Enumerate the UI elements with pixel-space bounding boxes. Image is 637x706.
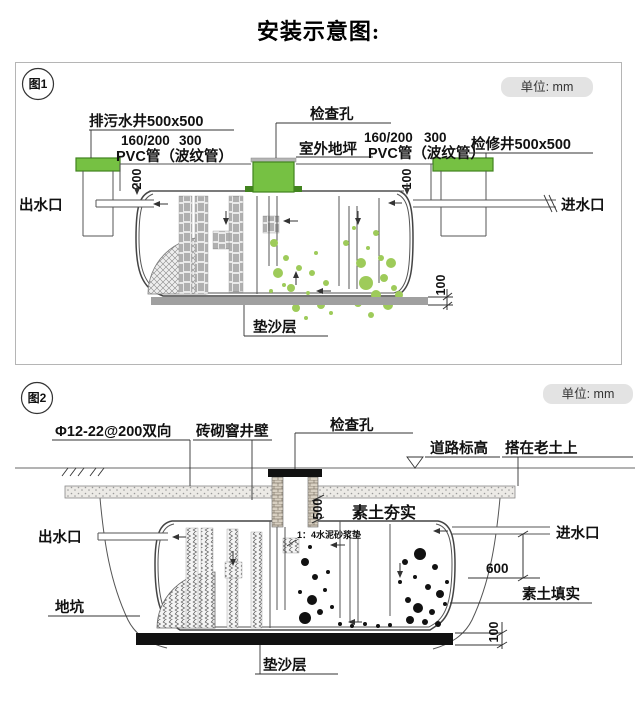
base-slab-fig2 — [136, 633, 453, 645]
dim-100-top-fig1: 100 — [400, 169, 414, 194]
figure2-panel: 图2 单位: mm — [0, 372, 637, 706]
svg-text:100: 100 — [487, 622, 501, 643]
label-inlet-fig1: 进水口 — [561, 196, 605, 214]
label-compacted-soil: 素土夯实 — [352, 503, 416, 522]
svg-text:500: 500 — [311, 499, 325, 520]
dim-200-fig1: 200 — [130, 169, 144, 194]
unit-badge-fig1-text: 单位: mm — [521, 79, 574, 94]
sand-base-fig1 — [151, 297, 428, 305]
label-pvc-left: PVC管（波纹管） — [116, 147, 233, 165]
label-mortar-pad: 1：4水泥砂浆垫 — [297, 529, 361, 540]
dim-500-fig2: 500 — [311, 495, 325, 523]
label-pvc-right-d1: 160/200 — [364, 130, 413, 145]
black-dots-fig2 — [298, 545, 449, 628]
label-rebar: Φ12-22@200双向 — [55, 422, 171, 440]
label-outlet-fig1: 出水口 — [19, 196, 63, 214]
installation-schematic: 安装示意图: 图1 单位: mm — [0, 0, 637, 706]
unit-badge-fig2: 单位: mm — [543, 384, 633, 404]
label-road-level: 道路标高 — [430, 439, 488, 457]
label-inspection-hole-fig2: 检查孔 — [330, 416, 374, 434]
svg-text:600: 600 — [486, 561, 509, 576]
figure2-tag: 图2 — [22, 383, 53, 414]
green-dots-fig1 — [269, 226, 403, 320]
inlet-pipe-fig2 — [452, 527, 550, 534]
label-inlet-fig2: 进水口 — [556, 524, 600, 542]
label-pvc-right-d2: 300 — [424, 130, 447, 145]
unit-badge-fig2-text: 单位: mm — [562, 386, 615, 401]
outlet-pipe-fig2 — [98, 533, 168, 540]
label-brick-wall: 砖砌窨井壁 — [196, 422, 269, 440]
ground-fig2 — [15, 468, 635, 498]
label-pit: 地坑 — [55, 598, 84, 616]
dim-100-bottom-fig1: 100 — [428, 275, 453, 310]
label-on-old-soil: 搭在老土上 — [505, 439, 578, 457]
dim-600-fig2: 600 — [468, 531, 540, 581]
figure2-tag-text: 图2 — [28, 391, 47, 405]
label-sand-layer-fig2: 垫沙层 — [263, 656, 307, 674]
unit-badge-fig1: 单位: mm — [501, 77, 593, 97]
label-pvc-left-d1: 160/200 — [121, 133, 170, 148]
right-well-fig1 — [413, 158, 557, 236]
label-soil-backfill: 素土填实 — [522, 585, 580, 603]
figure1-tag: 图1 — [23, 69, 54, 100]
figure1-tag-text: 图1 — [29, 77, 48, 91]
inspection-box-fig1 — [245, 158, 302, 192]
label-pvc-left-d2: 300 — [179, 133, 202, 148]
figure1-panel: 图1 单位: mm — [15, 62, 622, 365]
page-title: 安装示意图: — [0, 14, 637, 46]
label-pvc-right: PVC管（波纹管） — [368, 144, 485, 162]
dim-100-fig2: 100 — [455, 622, 507, 649]
label-sewage-well: 排污水井500x500 — [89, 112, 203, 130]
label-inspection-hole-fig1: 检查孔 — [310, 105, 354, 123]
svg-text:100: 100 — [434, 275, 448, 296]
label-access-well: 检修井500x500 — [471, 135, 571, 153]
label-sand-layer-fig1: 垫沙层 — [253, 318, 297, 336]
label-outlet-fig2: 出水口 — [38, 528, 82, 546]
label-outdoor-ground: 室外地坪 — [299, 140, 357, 158]
